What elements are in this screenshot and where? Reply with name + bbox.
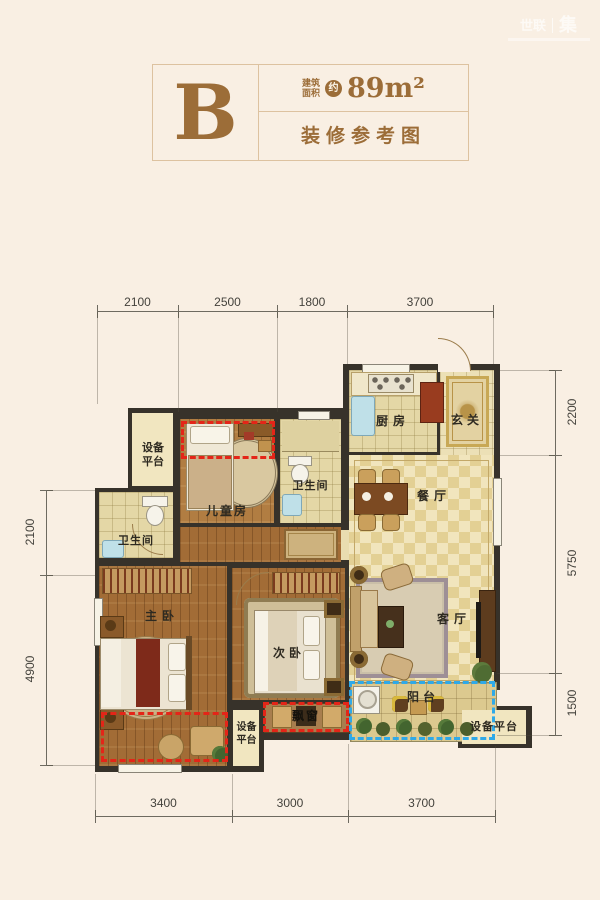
label-living-room: 客厅 — [424, 612, 484, 627]
dim-guide — [95, 774, 96, 816]
balcony-plant — [356, 718, 372, 734]
toilet-bowl-master — [146, 505, 164, 526]
nightstand — [324, 678, 344, 696]
area-row: 建筑 面积 约 89m² — [259, 65, 468, 112]
approx-badge: 约 — [325, 80, 342, 97]
tv-cabinet — [479, 590, 496, 672]
master-bed-runner — [136, 639, 160, 707]
shower-area — [282, 421, 339, 452]
subtitle-row: 装修参考图 — [259, 112, 468, 160]
dim-guide — [493, 312, 494, 364]
dim-guide — [495, 746, 496, 816]
unit-header: B 建筑 面积 约 89m² 装修参考图 — [152, 64, 469, 161]
watermark-subline — [508, 38, 590, 41]
master-bottom-window — [118, 764, 182, 773]
children-blanket — [188, 455, 232, 509]
dining-plate — [384, 492, 393, 501]
label-bathroom-master: 卫生间 — [99, 535, 173, 549]
balcony-plant — [376, 722, 390, 736]
children-pillow — [190, 426, 230, 444]
master-pillow — [168, 674, 186, 702]
sofa-seat — [360, 590, 378, 648]
dim-line-top — [97, 311, 493, 312]
unit-letter-cell: B — [153, 65, 259, 160]
label-second-bedroom: 次卧 — [266, 646, 312, 661]
label-balcony: 阳台 — [398, 690, 448, 705]
dim-line-right — [555, 370, 556, 735]
master-bed-sheet — [101, 639, 121, 707]
dim-guide — [47, 765, 95, 766]
side-table — [350, 650, 368, 668]
dim-guide — [497, 735, 555, 736]
bathroom-shared-window — [298, 411, 330, 420]
label-bay-window: 飘窗 — [264, 709, 348, 724]
label-master-bedroom: 主卧 — [132, 609, 192, 624]
dim-guide — [47, 490, 95, 491]
dim-guide — [97, 312, 98, 404]
plant — [472, 662, 492, 683]
area-value: 89m² — [347, 75, 425, 102]
balcony-plant — [438, 719, 454, 735]
master-pillow — [168, 643, 186, 671]
coffee-table-decor — [386, 620, 394, 628]
dim-bottom-1: 3000 — [232, 797, 348, 809]
watermark: 世联 集 — [520, 16, 577, 34]
living-window — [493, 478, 502, 546]
dim-bottom-2: 3700 — [348, 797, 495, 809]
label-children-room: 儿童房 — [180, 504, 274, 519]
balcony-plant — [396, 719, 412, 735]
area-prefix-line2: 面积 — [302, 88, 320, 98]
dim-left-0: 2100 — [24, 508, 36, 556]
area-prefix: 建筑 面积 — [302, 78, 320, 99]
dim-guide — [347, 312, 348, 364]
dim-guide — [500, 370, 555, 371]
bay-plant — [212, 746, 228, 762]
dining-chair — [382, 514, 400, 531]
washing-machine-door — [358, 690, 377, 709]
side-table — [350, 566, 368, 584]
bathroom-sink — [282, 494, 302, 516]
foyer-rug — [446, 376, 489, 447]
dim-right-1: 5750 — [566, 539, 578, 587]
dim-top-3: 3700 — [347, 296, 493, 308]
nightstand — [324, 600, 344, 618]
tv — [476, 602, 481, 658]
plan-subtitle: 装修参考图 — [301, 127, 426, 146]
area-prefix-line1: 建筑 — [302, 78, 320, 88]
master-wardrobe — [102, 568, 192, 594]
children-desk-item — [258, 440, 272, 452]
dim-guide — [232, 774, 233, 816]
dim-right-2: 1500 — [566, 679, 578, 727]
dim-guide — [178, 312, 179, 412]
master-headboard — [186, 636, 192, 710]
watermark-seal: 集 — [559, 16, 577, 34]
floorplan-page: 世联 集 B 建筑 面积 约 89m² 装修参考图 — [0, 0, 600, 900]
label-dining-room: 餐厅 — [404, 489, 464, 504]
dim-bottom-0: 3400 — [95, 797, 232, 809]
nightstand-lamp — [105, 712, 116, 723]
dim-top-1: 2500 — [178, 296, 277, 308]
label-bathroom-shared: 卫生间 — [280, 480, 341, 494]
unit-info-cell: 建筑 面积 约 89m² 装修参考图 — [259, 65, 468, 160]
dim-line-bottom — [95, 816, 495, 817]
label-equip-platform-bottom-right: 设备平台 — [462, 721, 526, 735]
dim-guide — [277, 312, 278, 412]
corridor-rug — [284, 529, 338, 560]
dim-top-0: 2100 — [97, 296, 178, 308]
nightstand-lamp — [105, 620, 116, 631]
balcony-plant — [418, 722, 432, 736]
dim-guide — [47, 575, 95, 576]
dim-line-left — [46, 490, 47, 765]
dim-guide — [497, 673, 555, 674]
dim-top-2: 1800 — [277, 296, 347, 308]
dim-right-0: 2200 — [566, 388, 578, 436]
children-desk-item — [244, 432, 254, 440]
label-kitchen: 厨房 — [349, 414, 437, 429]
watermark-divider — [552, 18, 553, 33]
unit-letter: B — [173, 75, 237, 151]
dim-left-1: 4900 — [24, 645, 36, 693]
second-wardrobe — [272, 572, 340, 594]
dim-guide — [500, 455, 555, 456]
dining-plate — [362, 492, 371, 501]
label-equip-platform-top-left: 设备平台 — [139, 442, 167, 470]
stove — [368, 374, 414, 393]
entry-opening — [438, 364, 470, 372]
dim-guide — [348, 744, 349, 816]
label-foyer: 玄关 — [440, 413, 494, 428]
second-pillow — [303, 616, 320, 646]
bay-pouf — [158, 734, 184, 760]
dining-chair — [358, 514, 376, 531]
watermark-brand: 世联 — [520, 19, 546, 32]
label-equip-platform-bottom-middle: 设备平台 — [235, 722, 258, 747]
